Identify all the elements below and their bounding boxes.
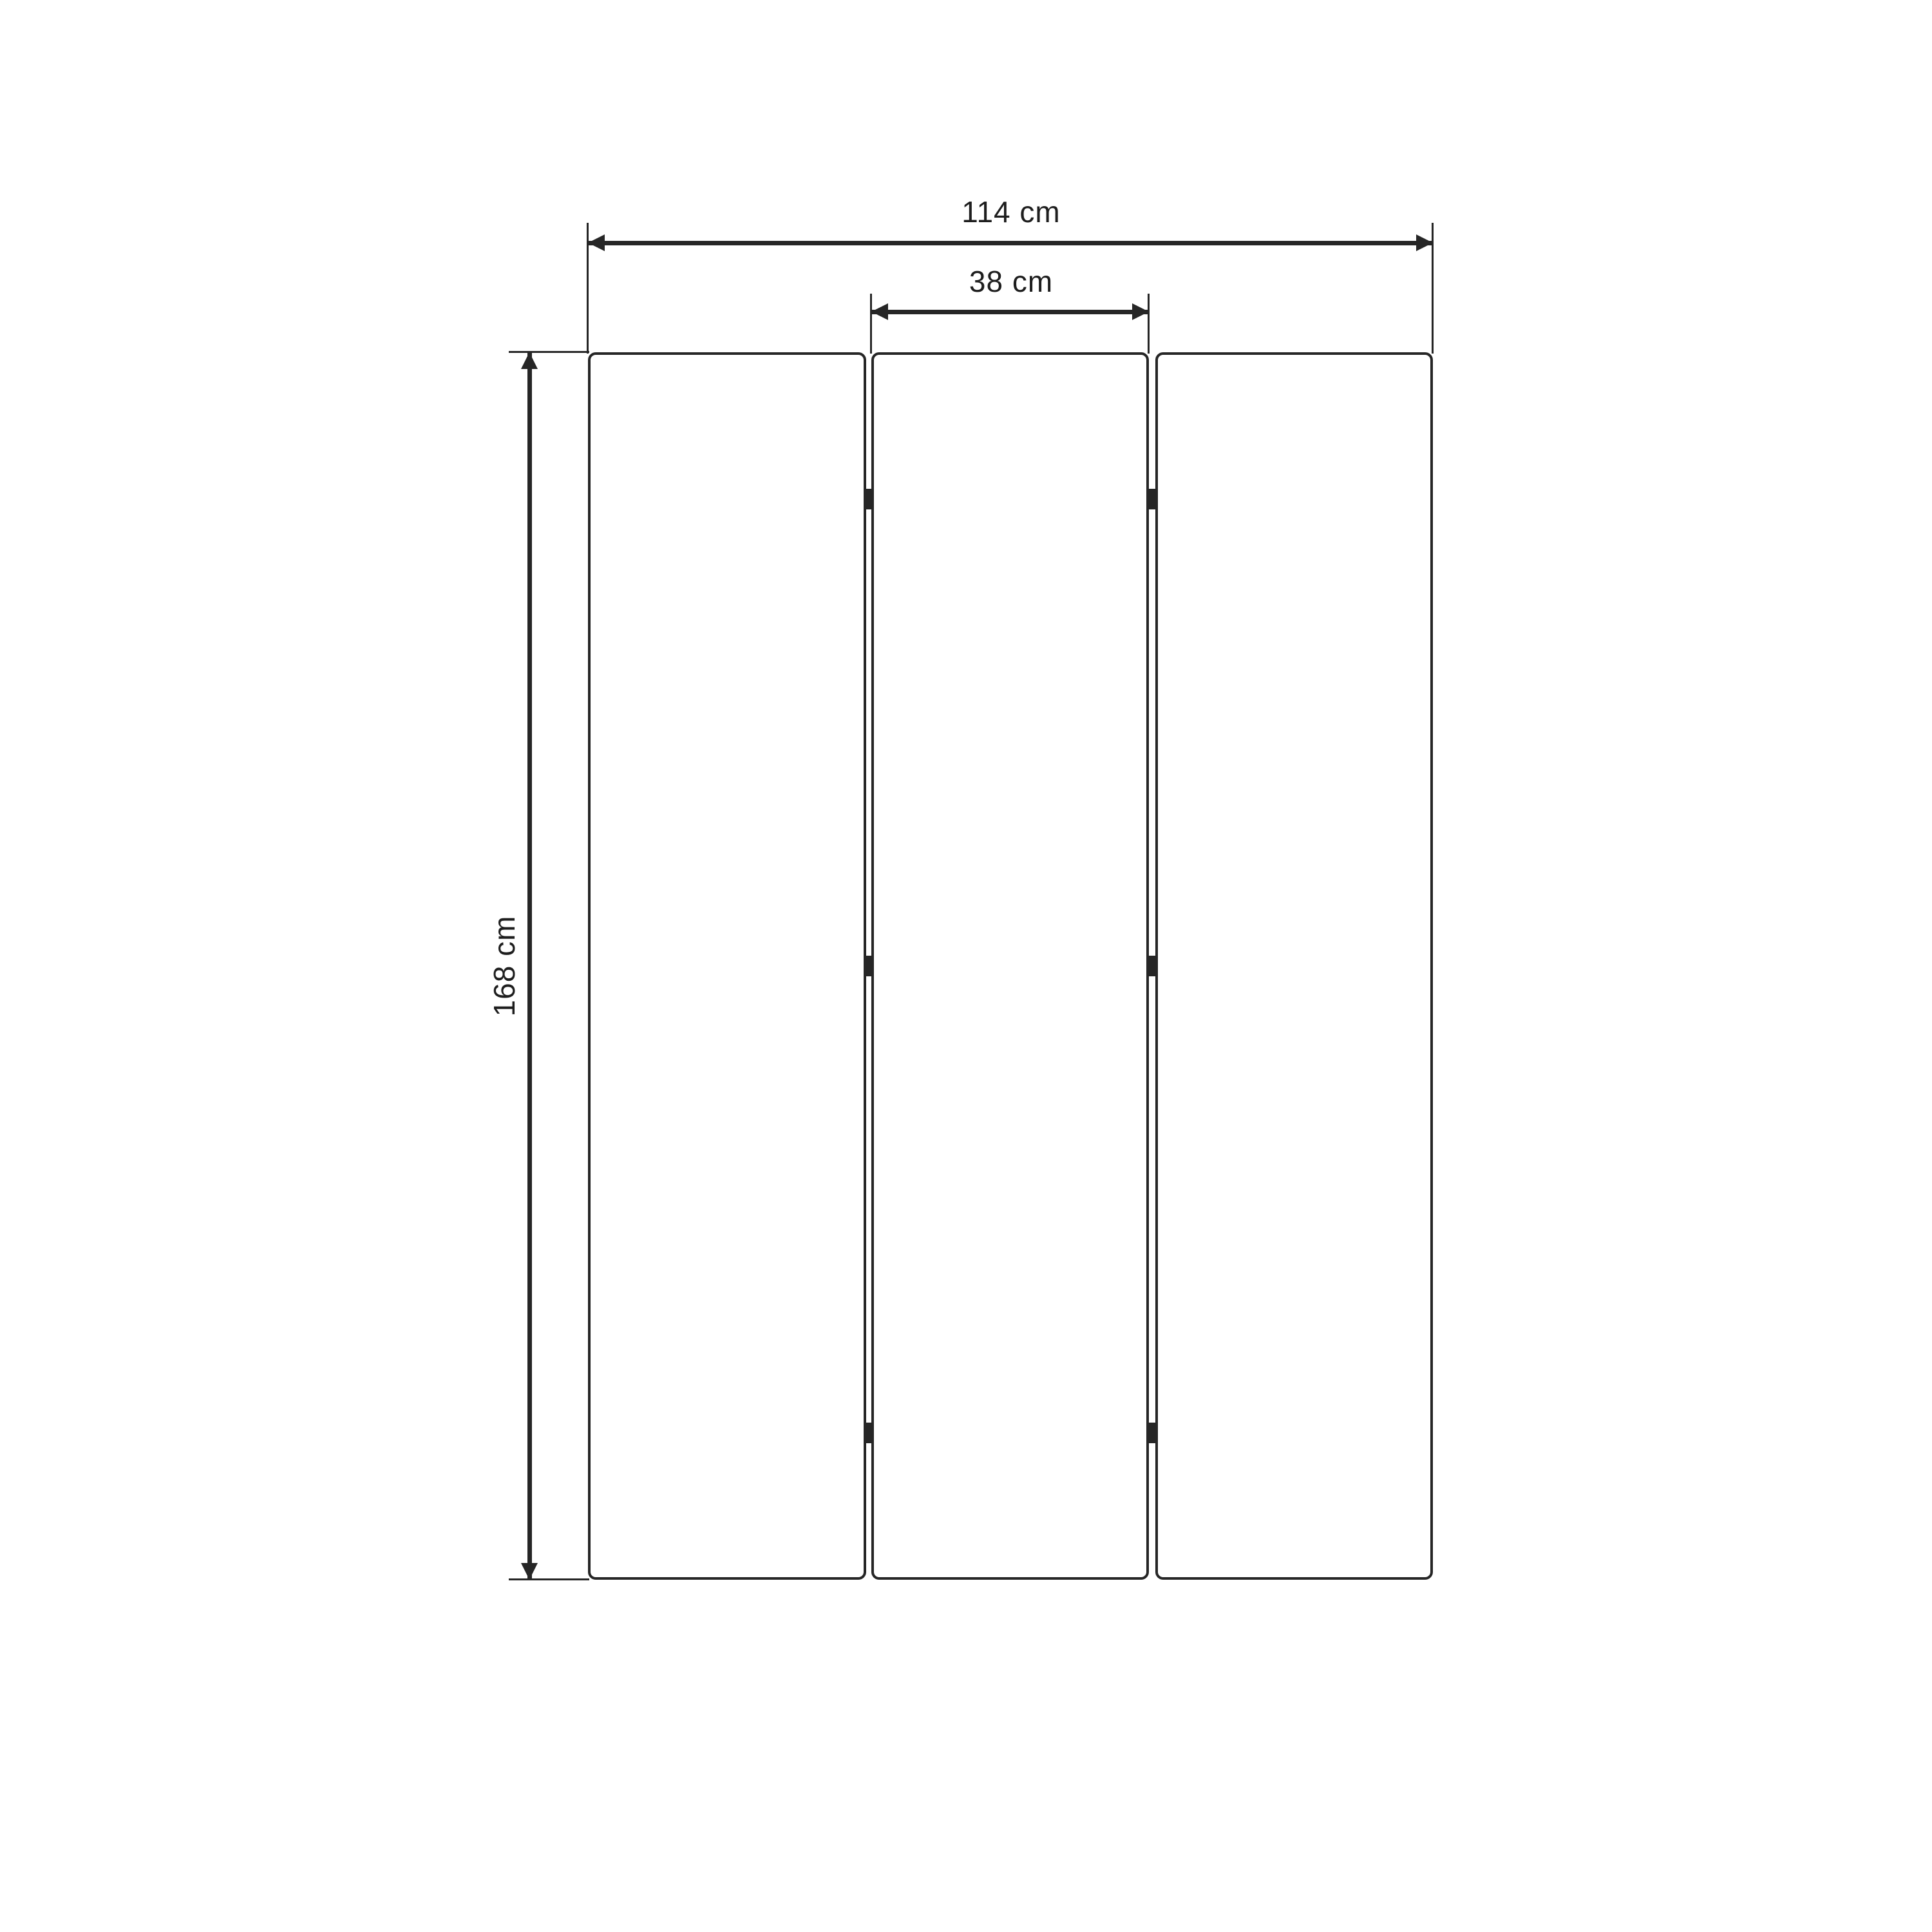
panel-right: [1155, 352, 1433, 1580]
arrowhead-right-icon: [1416, 234, 1433, 251]
arrowhead-left-icon: [871, 303, 888, 320]
height-label: 168 cm: [489, 916, 519, 1017]
hinge-mark: [1148, 489, 1157, 509]
hinge-mark: [864, 956, 873, 976]
dimension-line-overall-width: [588, 241, 1433, 245]
dimension-line-height: [527, 352, 532, 1580]
overall-width-label: 114 cm: [961, 197, 1060, 227]
arrowhead-right-icon: [1132, 303, 1149, 320]
dimension-line-panel-width: [871, 310, 1149, 314]
hinge-mark: [864, 1423, 873, 1443]
extension-line-panel-width-right: [1148, 294, 1150, 354]
panel-left: [588, 352, 866, 1580]
hinge-mark: [1148, 956, 1157, 976]
arrowhead-down-icon: [521, 1563, 538, 1580]
extension-line-panel-width-left: [870, 294, 872, 354]
hinge-mark: [864, 489, 873, 509]
hinge-mark: [1148, 1423, 1157, 1443]
arrowhead-up-icon: [521, 352, 538, 369]
panel-width-label: 38 cm: [969, 267, 1053, 296]
arrowhead-left-icon: [588, 234, 605, 251]
dimension-diagram: 114 cm 38 cm 168 cm: [0, 0, 1932, 1932]
panel-middle: [871, 352, 1149, 1580]
